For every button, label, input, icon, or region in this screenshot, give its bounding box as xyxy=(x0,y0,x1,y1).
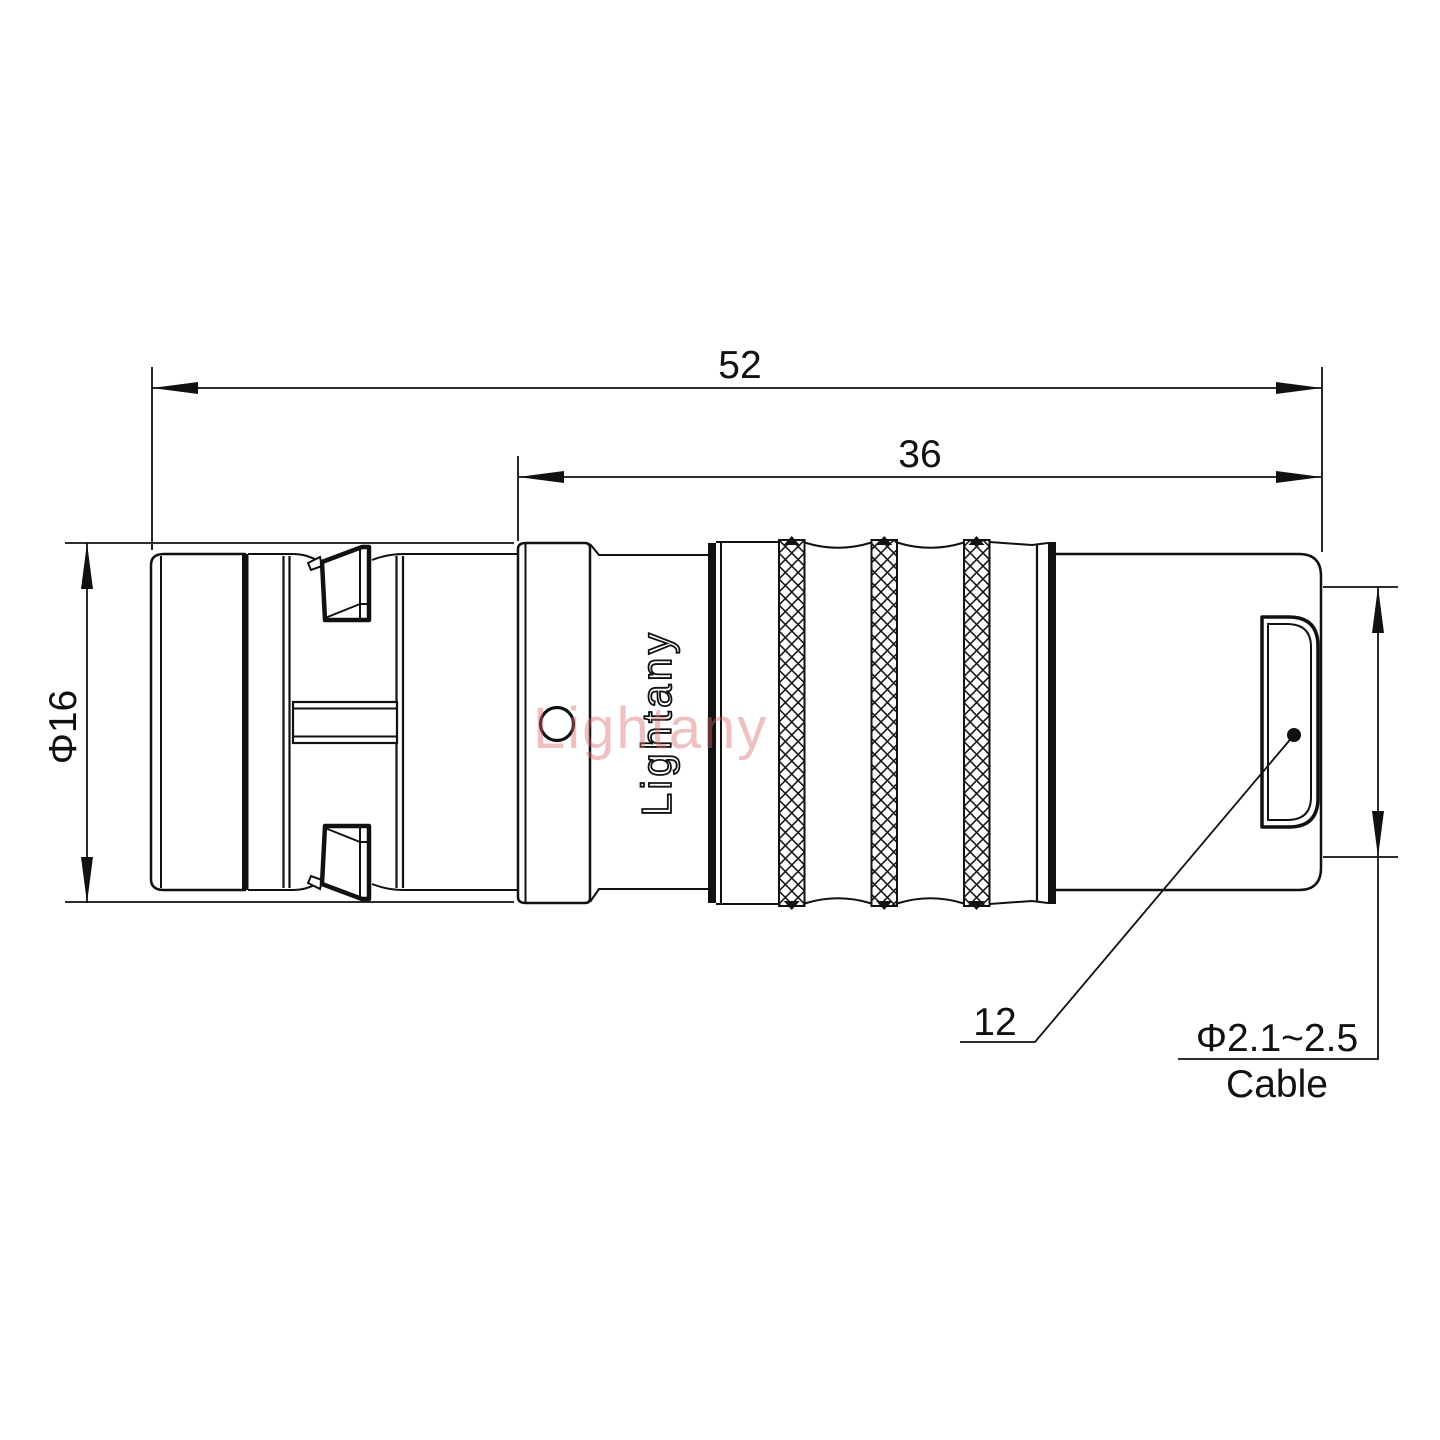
rear-body xyxy=(1056,554,1321,890)
cable-bushing xyxy=(1262,617,1318,827)
dimension-insert-length: 36 xyxy=(518,433,1322,541)
watermark-text: Lightany xyxy=(533,696,768,761)
cable-word-label: Cable xyxy=(1226,1063,1328,1106)
front-tube xyxy=(404,554,518,890)
knurl-band-3 xyxy=(964,536,990,910)
dim-36-label: 36 xyxy=(898,433,941,476)
technical-drawing-canvas: Lightany xyxy=(0,0,1440,1440)
drawing-page: Lightany xyxy=(0,0,1440,1440)
nut-rear-junction-line xyxy=(1048,542,1056,904)
front-cap xyxy=(151,554,249,890)
dimension-shell-diameter: Φ16 xyxy=(42,543,514,903)
dimension-overall-length: 52 xyxy=(152,344,1322,552)
latch-sleeve xyxy=(248,547,404,899)
knurl-band-1 xyxy=(779,536,805,910)
dim-dia16-label: Φ16 xyxy=(42,690,85,765)
latch-lug-top xyxy=(308,547,369,620)
latch-slot xyxy=(293,702,397,743)
cable-range-label: Φ2.1~2.5 xyxy=(1196,1017,1358,1060)
cap-junction-line xyxy=(242,554,249,890)
latch-lug-bottom xyxy=(308,826,369,899)
dim-52-label: 52 xyxy=(718,344,761,387)
dim-12-label: 12 xyxy=(973,1001,1016,1044)
knurl-band-2 xyxy=(872,536,898,910)
